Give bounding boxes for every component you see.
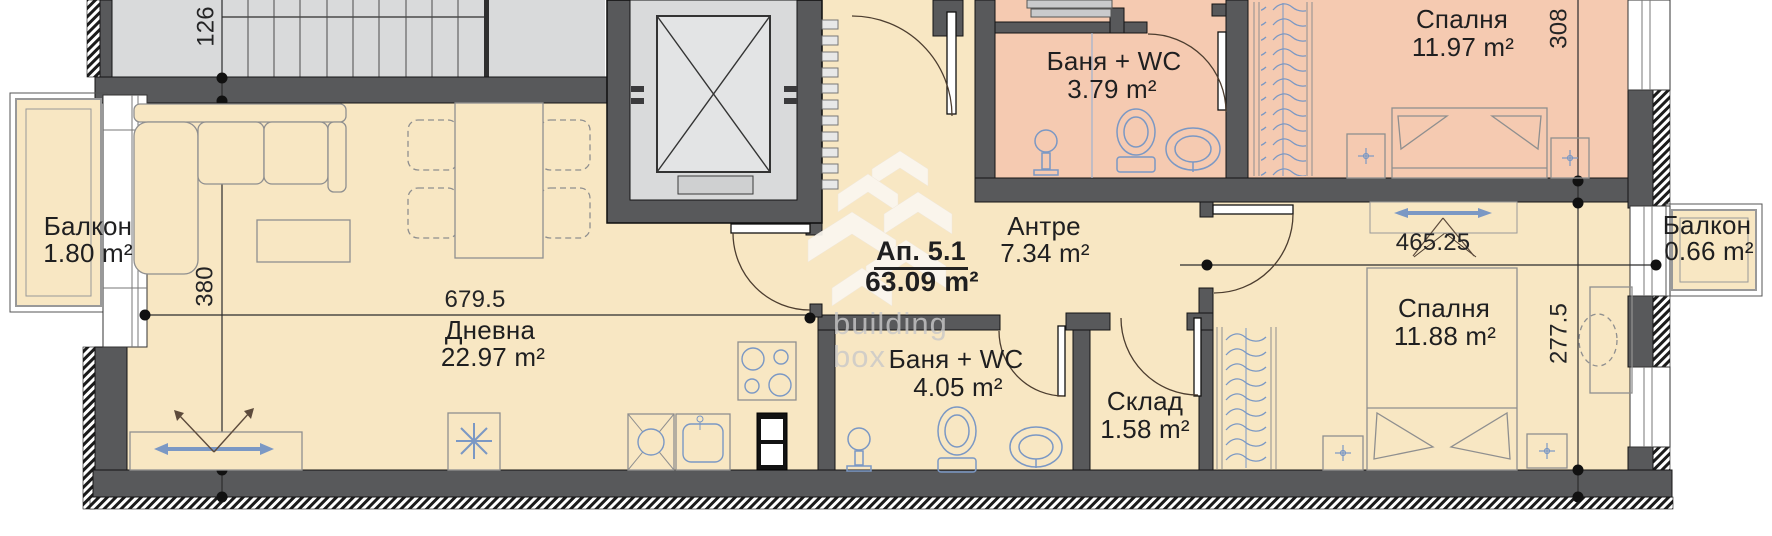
wardrobe-bedroom-top (1254, 2, 1312, 176)
room-label-bath-bottom-area: 4.05 m² (878, 374, 1038, 401)
room-label-balcony-left-area: 1.80 m² (30, 240, 146, 267)
balcony-left-frame (10, 93, 107, 312)
bath-top-shelf (1027, 0, 1112, 17)
dimension-bedroom-top-depth: 308 (1548, 0, 1573, 56)
room-label-balcony-right-area: 0.66 m² (1644, 238, 1772, 265)
corridor-shelf-rack (822, 20, 838, 189)
plant (448, 413, 500, 470)
room-label-balcony-right-name: Балкон (1642, 212, 1772, 239)
room-label-bedroom-top-name: Спалня (1392, 6, 1532, 33)
room-label-bath-top-area: 3.79 m² (1032, 76, 1192, 103)
room-label-living-name: Дневна (420, 317, 560, 344)
watermark-text-line1: building (833, 308, 983, 340)
washing-machine (628, 414, 674, 470)
room-label-balcony-left-name: Балкон (30, 213, 146, 240)
apartment-total-area: 63.09 m² (842, 267, 1002, 296)
tall-cabinet (757, 413, 787, 470)
room-label-hall-name: Антре (974, 213, 1114, 240)
bedroom-right-window (1630, 367, 1670, 447)
apartment-id: Ап. 5.1 (851, 237, 991, 265)
room-label-hall-area: 7.34 m² (975, 240, 1115, 267)
room-label-bedroom-top-area: 11.97 m² (1383, 34, 1543, 61)
dimension-stair-width: 126 (195, 0, 220, 54)
elevator-shaft (607, 0, 822, 223)
bedroom-top-window (1628, 0, 1670, 90)
room-label-storage-name: Склад (1075, 388, 1215, 415)
coffee-table (257, 220, 350, 262)
kitchen-sink (676, 414, 730, 470)
wardrobe-bedroom-right (1217, 327, 1276, 469)
watermark-text-line2: box (833, 341, 983, 373)
dimension-bedroom-right-width: 465.25 (1353, 231, 1513, 256)
dimension-living-width: 679.5 (405, 288, 545, 313)
room-label-storage-area: 1.58 m² (1065, 416, 1225, 443)
room-label-bath-top-name: Баня + WC (1034, 48, 1194, 75)
room-label-bedroom-right-area: 11.88 m² (1365, 323, 1525, 350)
room-label-bedroom-right-name: Спалня (1374, 295, 1514, 322)
floor-plan-canvas: Балкон 1.80 m² 126 380 679.5 Дневна 22.9… (0, 0, 1772, 536)
dimension-bedroom-right-depth: 277.5 (1548, 297, 1573, 369)
dimension-living-depth: 380 (194, 258, 219, 314)
stove (738, 342, 796, 400)
room-label-living-area: 22.97 m² (413, 344, 573, 371)
